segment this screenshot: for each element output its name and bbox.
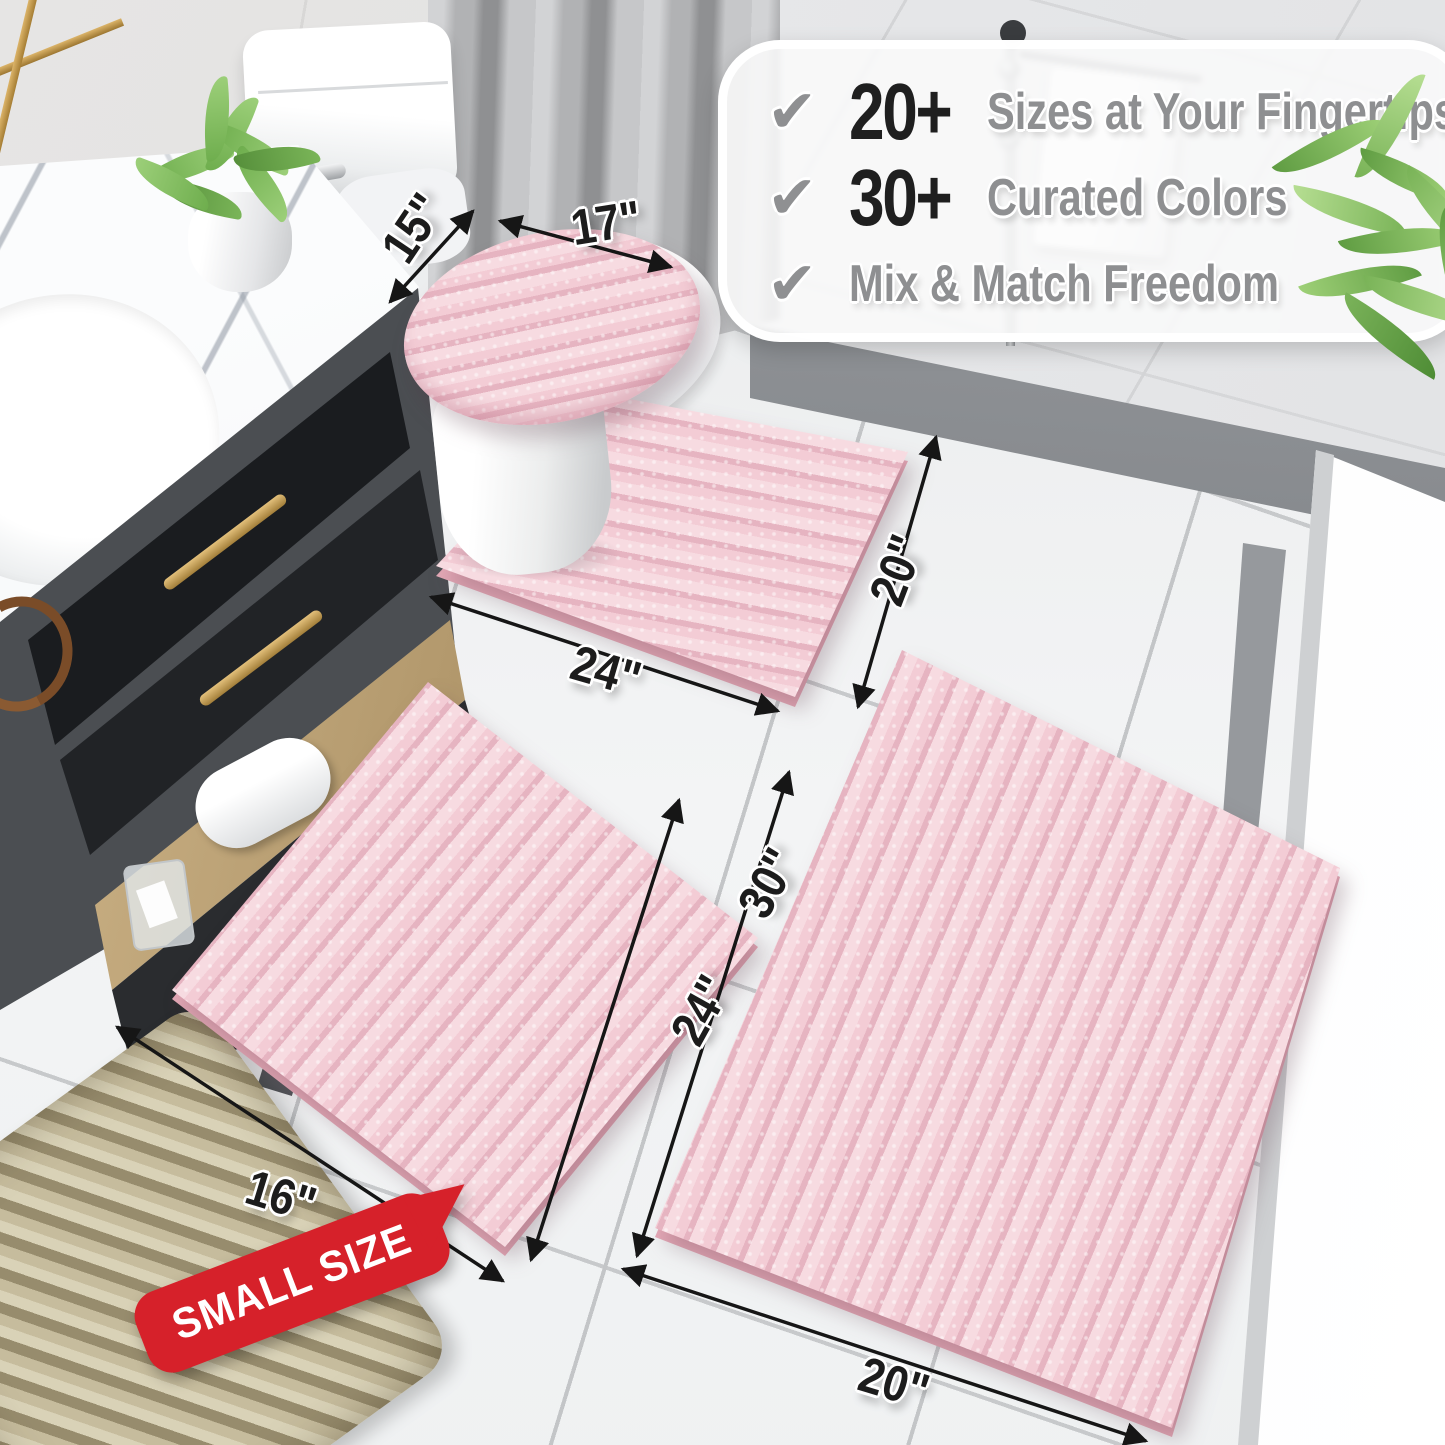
small-size-badge: SMALL SIZE bbox=[292, 1283, 613, 1368]
product-image-bath-rug-set: ✔ 20+ Sizes at Your Fingertips ✔ 30+ Cur… bbox=[0, 0, 1445, 1445]
dimension-arrows bbox=[0, 0, 1445, 1445]
dimension-label-lid-width: 17" bbox=[568, 193, 645, 253]
